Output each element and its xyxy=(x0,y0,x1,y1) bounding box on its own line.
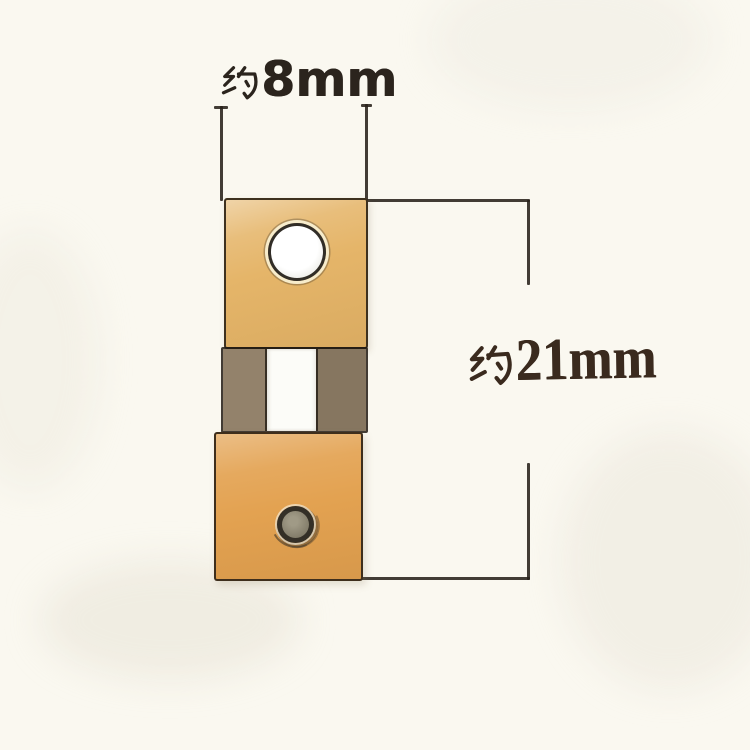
part-top-block xyxy=(224,198,368,349)
middle-left-clamp xyxy=(223,349,267,431)
part-middle-section xyxy=(221,347,368,433)
background-smudge xyxy=(0,230,100,490)
height-extension-line-top xyxy=(366,199,530,202)
width-dimension-label: 8mm xyxy=(221,57,397,105)
height-dimension-line-lower xyxy=(527,463,530,580)
width-extension-line-right xyxy=(365,104,368,201)
mounting-hole-icon xyxy=(268,223,326,281)
middle-right-clamp xyxy=(316,349,366,431)
approx-character-icon xyxy=(466,339,518,394)
part-bottom-block xyxy=(214,432,363,581)
spring-steel-strip xyxy=(267,349,316,431)
product-image-canvas: 8mm 21mm xyxy=(0,0,750,750)
height-extension-line-bottom xyxy=(356,577,530,580)
height-dimension-label: 21mm xyxy=(468,333,676,393)
height-value-text: 21mm xyxy=(515,330,657,387)
width-value-text: 8mm xyxy=(261,57,397,103)
approx-character-icon xyxy=(221,63,261,105)
height-dimension-line-upper xyxy=(527,200,530,285)
rivet-pin-icon xyxy=(277,506,314,543)
background-smudge xyxy=(560,430,750,690)
background-smudge xyxy=(430,0,710,110)
width-extension-line-left xyxy=(220,106,223,201)
